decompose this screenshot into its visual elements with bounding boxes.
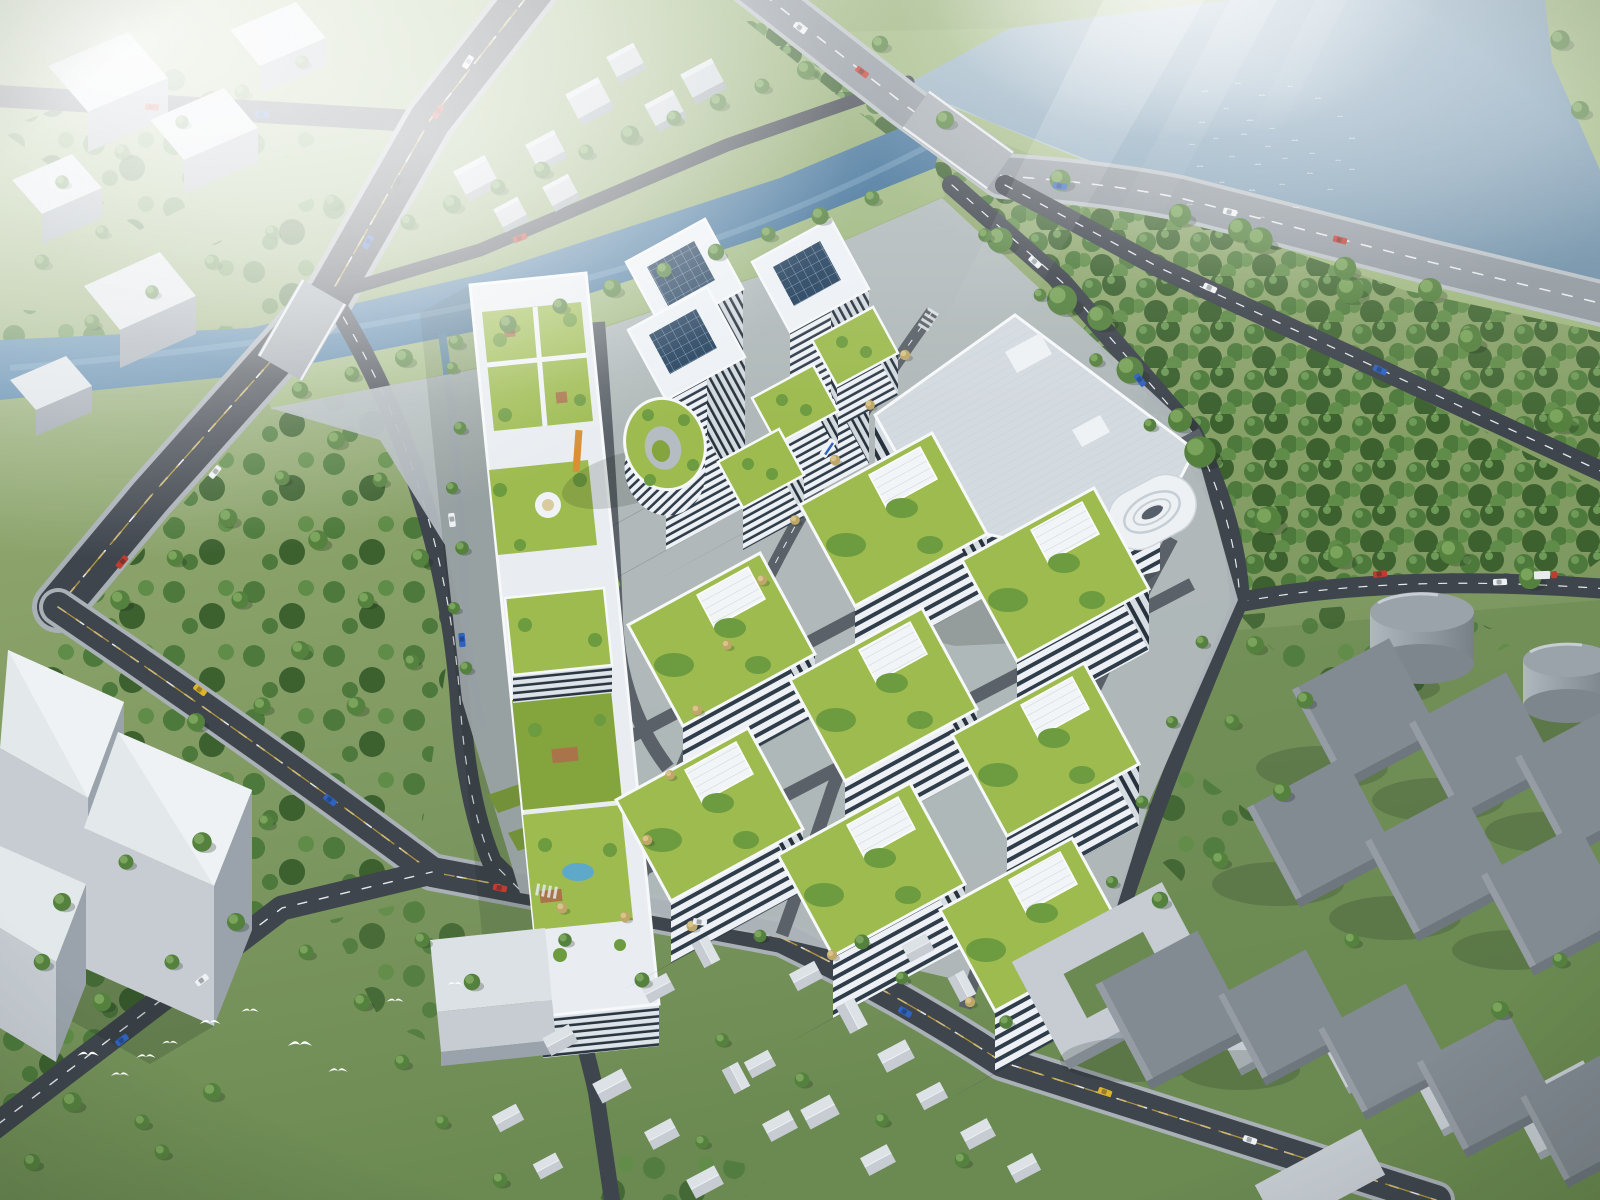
aerial-masterplan-rendering: [0, 0, 1600, 1200]
vignette: [0, 0, 1600, 1200]
atmosphere: [0, 0, 1600, 1200]
rendering-canvas: [0, 0, 1600, 1200]
